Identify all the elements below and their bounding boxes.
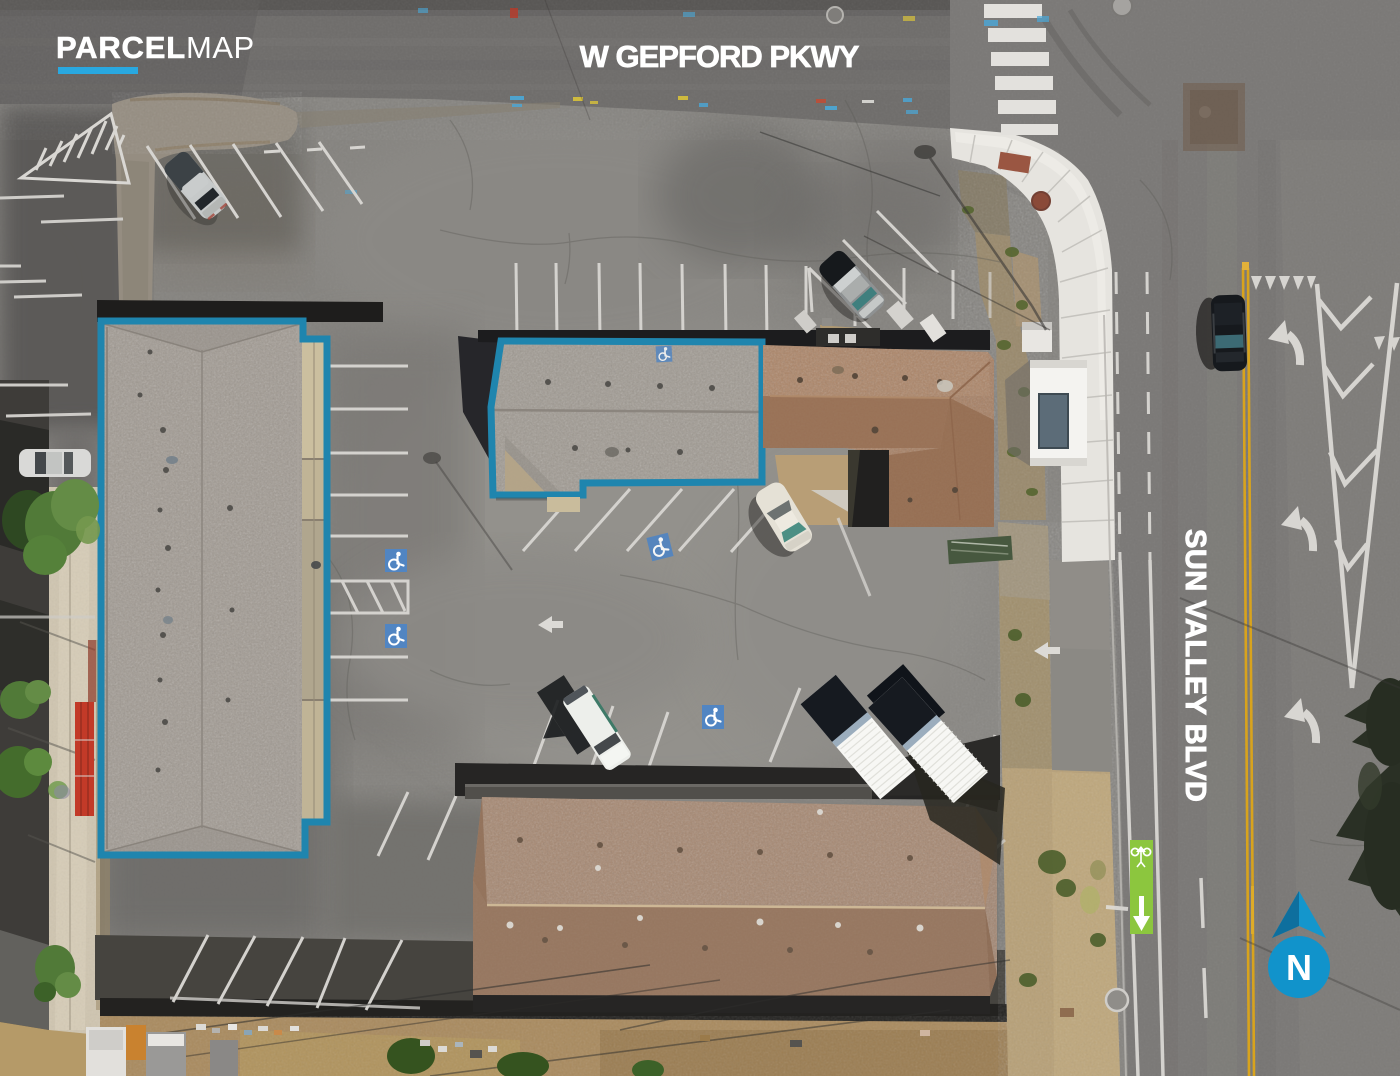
svg-text:SUN VALLEY BLVD: SUN VALLEY BLVD <box>1179 529 1211 802</box>
svg-text:PARCEL: PARCEL <box>56 30 186 65</box>
svg-text:W GEPFORD PKWY: W GEPFORD PKWY <box>580 39 860 74</box>
svg-text:MAP: MAP <box>186 30 255 65</box>
svg-text:N: N <box>1286 947 1312 988</box>
